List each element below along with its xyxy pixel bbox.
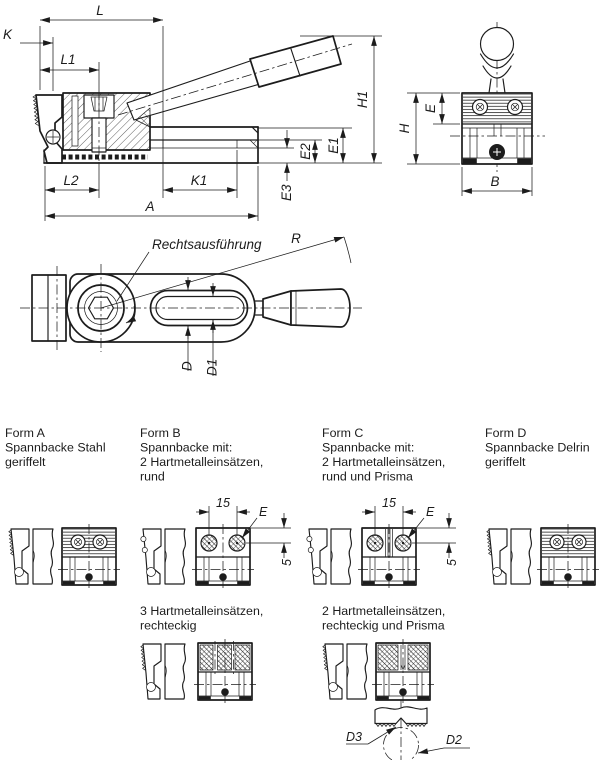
catalog-technical-drawing: L K L1 L2 K1 A E3 E2 E1 H1: [0, 0, 600, 760]
form-c-front-drawing: [358, 524, 420, 588]
detail-dim-d3: D3: [346, 730, 362, 744]
form-b-dim-e: E: [259, 505, 268, 519]
form-b-side-drawing: [141, 529, 186, 584]
front-view: H E B: [397, 22, 545, 196]
dim-label-e1: E1: [326, 137, 341, 154]
form-a-desc-2: geriffelt: [5, 455, 46, 469]
form-b-desc-3: rund: [140, 470, 165, 484]
form-a-desc-1: Spannbacke Stahl: [5, 441, 106, 455]
dim-label-e3: E3: [279, 184, 294, 201]
form-c-alt-1: 2 Hartmetalleinsätzen,: [322, 604, 445, 618]
form-a: Form A Spannbacke Stahl geriffelt: [5, 426, 120, 588]
form-c-desc-3: rund und Prisma: [322, 470, 413, 484]
dim-label-d: D: [180, 361, 195, 371]
form-a-front-drawing: [58, 524, 120, 588]
form-c-title: Form C: [322, 426, 363, 440]
form-c-dim-e: E: [426, 505, 435, 519]
dim-label-h1: H1: [355, 91, 370, 108]
form-c-desc-1: Spannbacke mit:: [322, 441, 414, 455]
clamping-jaw: [36, 95, 62, 163]
dim-label-d1: D1: [205, 359, 220, 376]
prism-detail-view: D3 D2: [346, 700, 470, 760]
form-c-side-drawing: [307, 529, 352, 584]
form-d-desc-1: Spannbacke Delrin: [485, 441, 590, 455]
ball-knob: [481, 28, 514, 61]
form-b-rect-side-drawing: [141, 644, 186, 699]
dim-label-b: B: [490, 174, 499, 189]
dim-label-l1: L1: [60, 52, 75, 67]
form-d: Form D Spannbacke Delrin geriffelt: [485, 426, 599, 588]
form-d-title: Form D: [485, 426, 526, 440]
detail-dim-d2: D2: [446, 733, 462, 747]
form-a-title: Form A: [5, 426, 46, 440]
form-b: Form B Spannbacke mit: 2 Hartmetalleinsä…: [140, 426, 294, 703]
dim-label-k: K: [3, 27, 13, 42]
form-b-alt-1: 3 Hartmetalleinsätzen,: [140, 604, 263, 618]
dim-label-h: H: [397, 123, 412, 133]
form-c-alt-2: rechteckig und Prisma: [322, 619, 445, 633]
dim-label-l2: L2: [63, 173, 79, 188]
form-b-front-drawing: [192, 524, 254, 588]
form-b-title: Form B: [140, 426, 181, 440]
form-c-rect-front-drawing: [372, 639, 434, 703]
form-b-desc-1: Spannbacke mit:: [140, 441, 232, 455]
form-b-alt-2: rechteckig: [140, 619, 197, 633]
dim-label-e: E: [423, 103, 438, 113]
form-c-dim-5: 5: [445, 559, 459, 566]
form-d-front-drawing: [537, 524, 599, 588]
dim-label-l: L: [96, 3, 104, 18]
form-a-side-drawing: [9, 529, 54, 584]
dim-label-a: A: [144, 199, 154, 214]
dim-label-k1: K1: [191, 173, 208, 188]
form-c-dim-15: 15: [382, 496, 396, 510]
form-c-rect-side-drawing: [323, 644, 368, 699]
form-d-desc-2: geriffelt: [485, 455, 526, 469]
form-c: Form C Spannbacke mit: 2 Hartmetalleinsä…: [307, 426, 470, 760]
side-section-view: L K L1 L2 K1 A E3 E2 E1 H1: [3, 3, 382, 221]
dim-label-r: R: [291, 231, 301, 246]
annotation-rechtsausfuehrung: Rechtsausführung: [152, 237, 262, 252]
form-d-side-drawing: [487, 529, 532, 584]
top-view: R Rechtsausführung D D1: [20, 231, 362, 376]
dim-label-e2: E2: [298, 143, 313, 160]
form-b-rect-front-drawing: [194, 639, 256, 703]
form-b-dim-5: 5: [280, 559, 294, 566]
form-b-dim-15: 15: [216, 496, 230, 510]
form-b-desc-2: 2 Hartmetalleinsätzen,: [140, 455, 263, 469]
form-c-desc-2: 2 Hartmetalleinsätzen,: [322, 455, 445, 469]
